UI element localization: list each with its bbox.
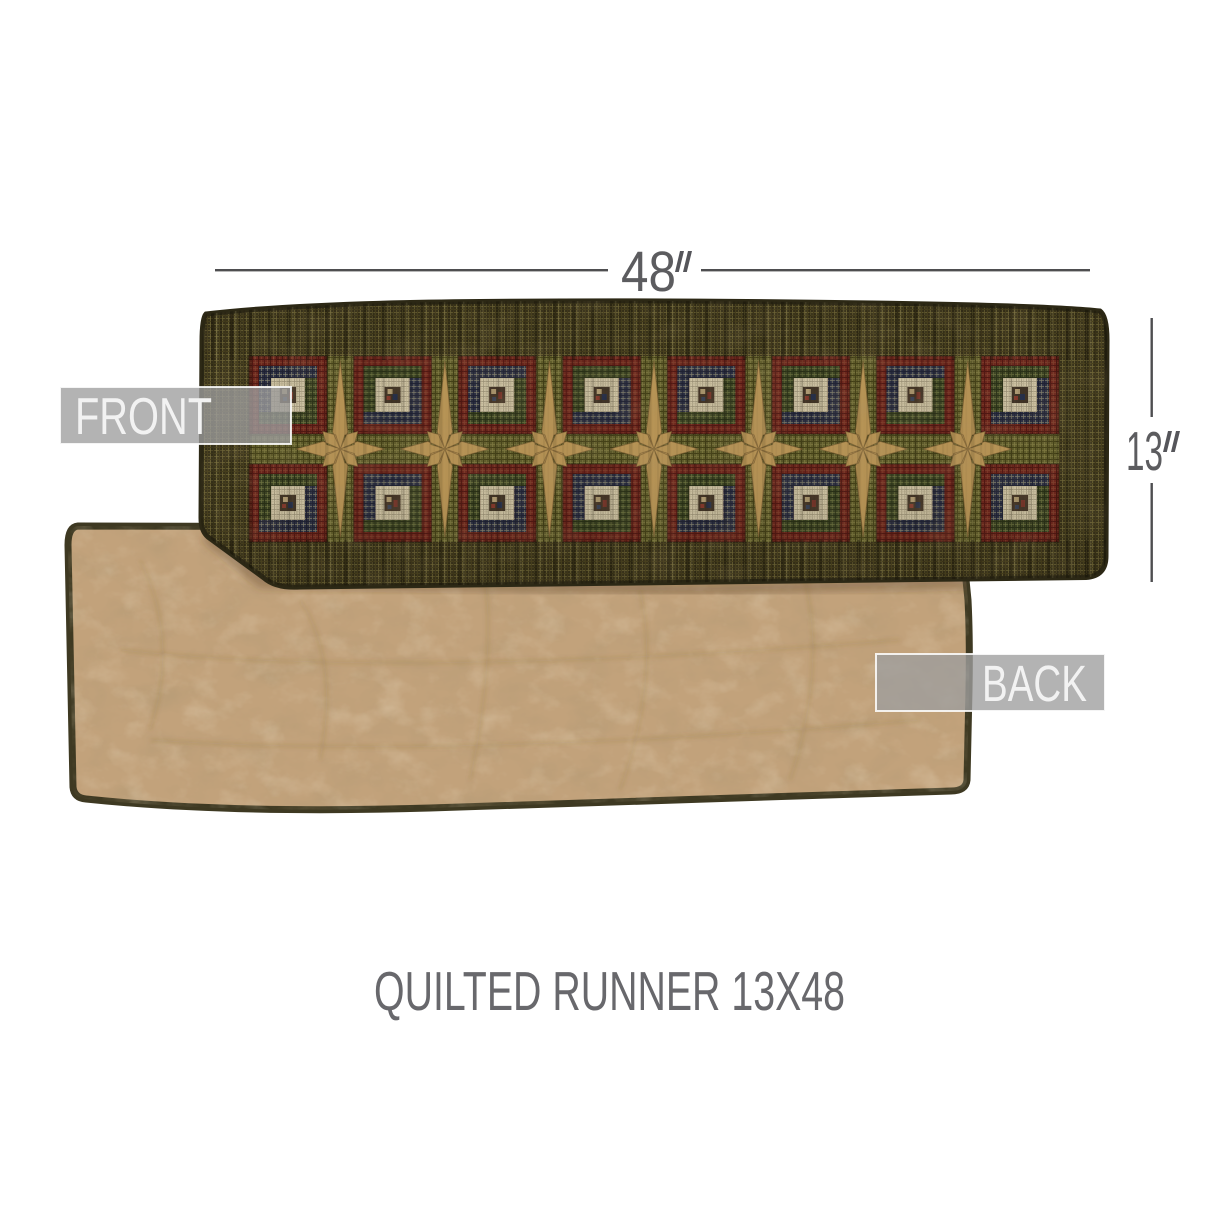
svg-text:48: 48: [621, 240, 676, 304]
svg-text:13: 13: [1126, 420, 1163, 482]
svg-text:QUILTED RUNNER 13X48: QUILTED RUNNER 13X48: [374, 960, 845, 1022]
svg-text:FRONT: FRONT: [75, 388, 212, 446]
svg-text:BACK: BACK: [982, 655, 1087, 712]
